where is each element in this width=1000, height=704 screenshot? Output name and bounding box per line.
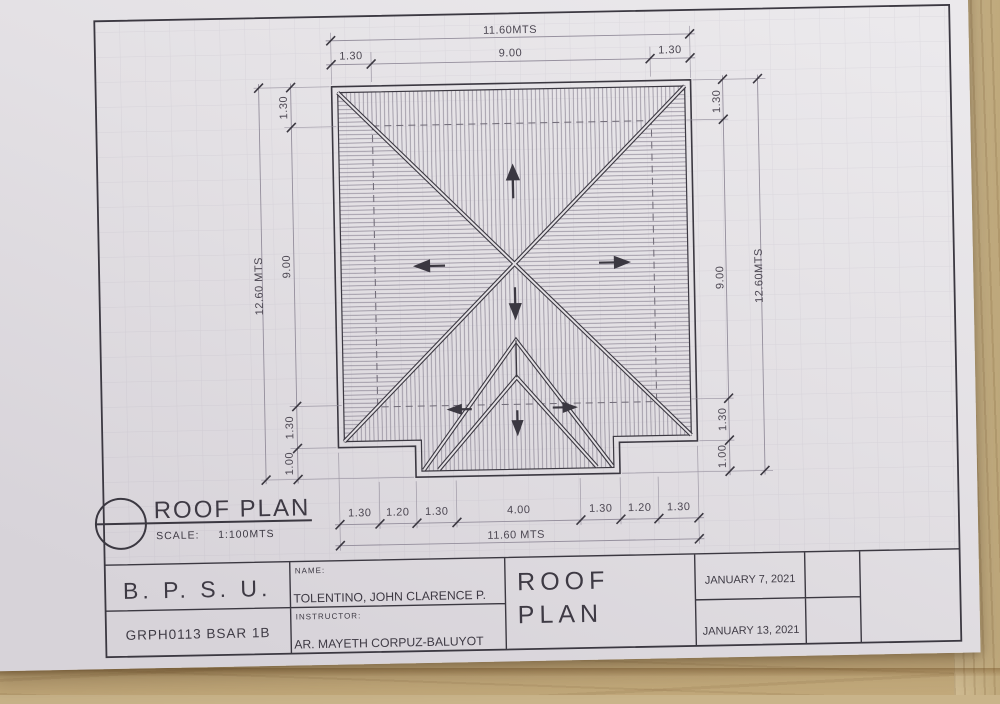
dim-right-overall: 12.60MTS: [753, 248, 766, 303]
drawing-sheet: 11.60MTS 1.30 9.00 1.30 1.30 1.20 1.30 4…: [0, 0, 981, 671]
scale-value: 1:100MTS: [218, 528, 275, 541]
dim-bottom-seg3: 1.30: [425, 506, 449, 518]
dim-top-seg2: 9.00: [499, 47, 523, 59]
dim-bottom-seg5: 1.30: [589, 502, 613, 514]
dim-right-seg4: 1.00: [717, 445, 729, 469]
dim-left-seg3: 1.30: [284, 416, 296, 440]
scale-label: SCALE:: [156, 529, 200, 542]
dim-bottom-seg4: 4.00: [507, 504, 531, 516]
dim-bottom-seg1: 1.30: [348, 507, 372, 519]
dim-right-seg2: 9.00: [714, 266, 726, 290]
course-section: GRPH0113 BSAR 1B: [126, 625, 271, 643]
dim-bottom-seg7: 1.30: [667, 501, 691, 513]
dim-top-seg3: 1.30: [658, 44, 682, 56]
dim-left-overall: 12.60 MTS: [253, 257, 266, 316]
dim-bottom-overall: 11.60 MTS: [487, 529, 545, 542]
dim-left-seg4: 1.00: [284, 452, 296, 476]
roof-plan-drawing: 11.60MTS 1.30 9.00 1.30 1.30 1.20 1.30 4…: [0, 0, 1000, 704]
date-row2: JANUARY 13, 2021: [703, 624, 800, 638]
plan-title: ROOF PLAN: [153, 494, 310, 524]
dim-top-seg1: 1.30: [339, 50, 363, 62]
instructor-label: INSTRUCTOR:: [296, 611, 362, 621]
institution-name: B. P. S. U.: [123, 575, 272, 604]
name-label: NAME:: [295, 566, 326, 576]
dim-left-seg2: 9.00: [281, 255, 293, 279]
date-row1: JANUARY 7, 2021: [705, 573, 796, 587]
sheet-title-line1: ROOF: [517, 567, 610, 597]
student-name: TOLENTINO, JOHN CLARENCE P.: [293, 588, 486, 606]
dim-left-seg1: 1.30: [278, 96, 290, 120]
dim-right-seg1: 1.30: [711, 90, 723, 114]
dim-bottom-seg6: 1.20: [628, 502, 652, 514]
sheet-title-line2: PLAN: [517, 600, 603, 630]
roof-plan: [332, 80, 698, 479]
dim-bottom-seg2: 1.20: [386, 506, 410, 518]
instructor-name: AR. MAYETH CORPUZ-BALUYOT: [294, 634, 484, 652]
dim-right-seg3: 1.30: [717, 407, 729, 431]
dim-top-overall: 11.60MTS: [483, 24, 537, 37]
title-block: B. P. S. U. GRPH0113 BSAR 1B NAME: TOLEN…: [105, 549, 962, 657]
porch-ridge-line: [516, 340, 517, 377]
